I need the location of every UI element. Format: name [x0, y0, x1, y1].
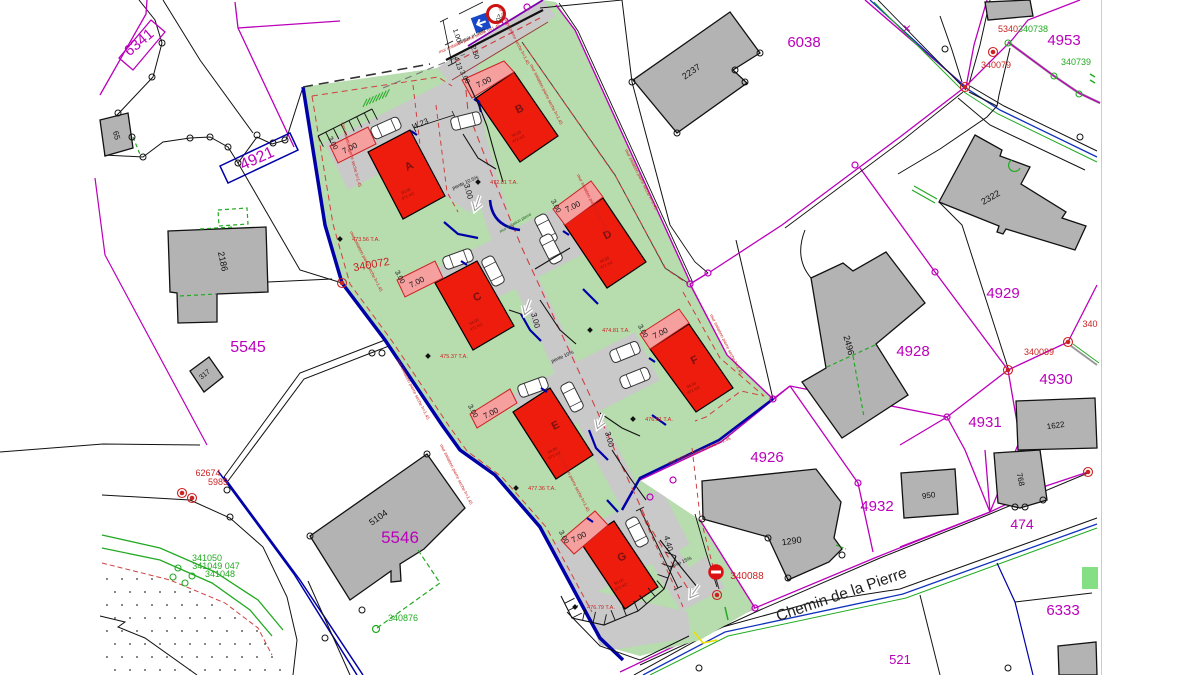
svg-text:340089: 340089 — [1024, 347, 1054, 357]
svg-text:6038: 6038 — [787, 34, 820, 51]
svg-text:340088: 340088 — [730, 571, 764, 582]
svg-text:476.61 T.A.: 476.61 T.A. — [645, 417, 673, 423]
svg-text:340079: 340079 — [981, 60, 1011, 70]
svg-text:4926: 4926 — [750, 449, 783, 466]
svg-text:340: 340 — [1082, 319, 1097, 329]
svg-text:340739: 340739 — [1061, 57, 1091, 67]
svg-text:5985: 5985 — [208, 477, 228, 487]
svg-text:475.37 T.A.: 475.37 T.A. — [440, 354, 468, 360]
svg-text:476.79 T.A.: 476.79 T.A. — [587, 605, 615, 611]
svg-text:340876: 340876 — [388, 613, 418, 623]
svg-text:4930: 4930 — [1039, 371, 1072, 388]
svg-text:6333: 6333 — [1046, 602, 1079, 619]
svg-text:5545: 5545 — [230, 339, 266, 356]
svg-text:521: 521 — [889, 652, 911, 667]
svg-text:5340: 5340 — [998, 24, 1018, 34]
svg-text:×: × — [903, 20, 911, 36]
svg-text:4931: 4931 — [968, 414, 1001, 431]
svg-text:4928: 4928 — [896, 343, 929, 360]
svg-text:474: 474 — [1010, 516, 1034, 532]
svg-text:950: 950 — [921, 490, 936, 501]
svg-text:340738: 340738 — [1018, 24, 1048, 34]
svg-text:4932: 4932 — [860, 498, 893, 515]
svg-text:4929: 4929 — [986, 285, 1019, 302]
svg-text:4953: 4953 — [1047, 32, 1080, 49]
svg-text:5546: 5546 — [381, 528, 419, 547]
svg-text:474.81 T.A.: 474.81 T.A. — [602, 328, 630, 334]
svg-text:341048: 341048 — [205, 569, 235, 579]
svg-text:477.36 T.A.: 477.36 T.A. — [528, 486, 556, 492]
svg-text:472.81 T.A.: 472.81 T.A. — [490, 180, 518, 186]
